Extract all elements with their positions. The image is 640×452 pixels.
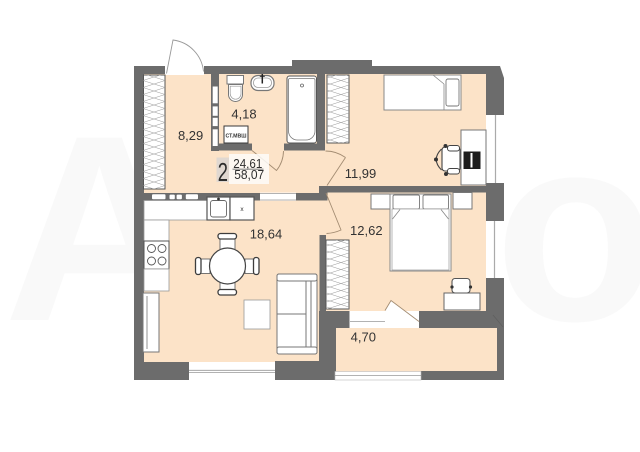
svg-text:4,70: 4,70	[351, 330, 376, 345]
svg-text:18,64: 18,64	[250, 227, 283, 242]
svg-text:СТ.МВШ: СТ.МВШ	[226, 133, 248, 139]
svg-text:8,29: 8,29	[178, 128, 203, 143]
svg-text:4,18: 4,18	[231, 107, 256, 122]
svg-text:11,99: 11,99	[345, 166, 377, 181]
svg-text:2: 2	[218, 159, 228, 187]
svg-text:12,62: 12,62	[350, 223, 383, 238]
